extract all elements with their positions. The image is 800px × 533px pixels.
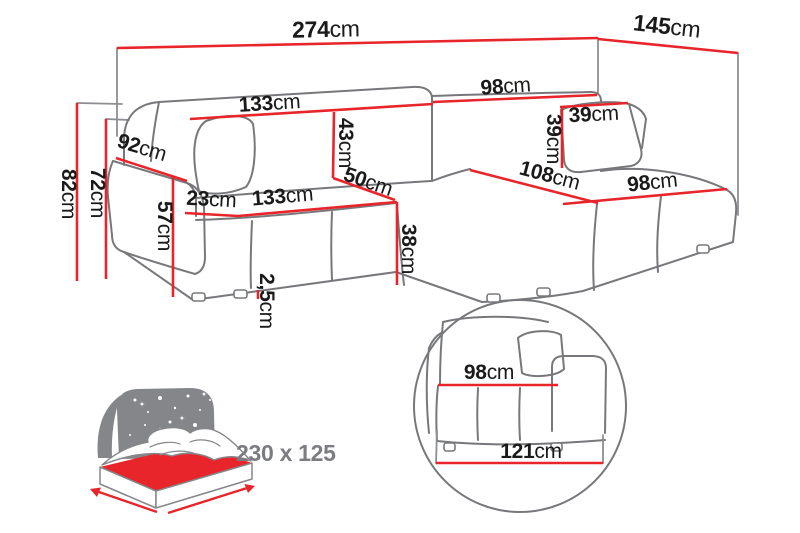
dim-line-total-depth	[598, 39, 738, 53]
dim-label-pillow-height: 39cm	[542, 114, 565, 164]
dim-line-backrest-cushion-height	[333, 112, 334, 178]
dim-label-chaise-front-width: 98cm	[626, 168, 678, 196]
dim-label-seat-width: 133cm	[251, 182, 314, 210]
dim-line-armrest-width	[185, 213, 238, 216]
dim-label-backrest-cushion-height: 43cm	[334, 118, 357, 168]
dim-label-right-backrest-width: 98cm	[480, 73, 532, 99]
dim-label-armrest-height: 57cm	[153, 201, 176, 251]
dim-label-leg-height: 2,5cm	[255, 273, 278, 329]
dim-label-frame-height: 72cm	[86, 168, 109, 218]
dim-label-detail-base-width: 121cm	[500, 440, 562, 463]
sleeping-function-icon	[90, 388, 255, 513]
dim-line-left-backrest-width	[190, 104, 433, 119]
detail-pillow	[518, 331, 564, 376]
dim-label-total-width: 274cm	[292, 15, 360, 42]
dim-label-total-depth: 145cm	[632, 9, 702, 42]
detail-view-circle: 98cm 121cm	[414, 300, 626, 512]
dim-label-left-backrest-width: 133cm	[238, 90, 301, 117]
left-back-pillow	[194, 116, 255, 194]
sofa-dimension-diagram: 274cm 145cm 133cm 98cm 43cm 82cm 72cm 92…	[0, 0, 800, 533]
sleeping-area-label: 230 x 125	[236, 440, 336, 466]
dim-label-overall-height: 82cm	[57, 169, 80, 219]
dim-label-seat-front-height: 38cm	[397, 224, 420, 274]
dim-label-armrest-width: 23cm	[186, 187, 237, 213]
dim-label-pillow-width: 39cm	[568, 102, 619, 128]
dim-label-seat-depth: 50cm	[341, 163, 396, 201]
dim-label-detail-seat-width: 98cm	[464, 361, 514, 384]
